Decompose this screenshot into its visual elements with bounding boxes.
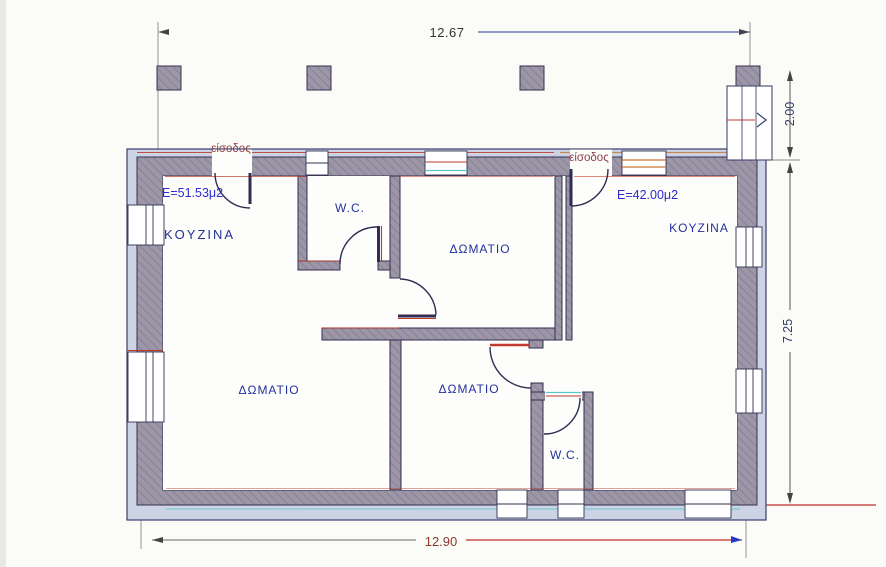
entrance-label-left: είσοδος [211,143,251,155]
arrowhead [152,537,163,543]
arrowhead [787,147,793,158]
column [307,66,331,90]
kitchen-label-right: KOYZINA [669,221,729,235]
porch-depth-dimension: 2.00 [783,102,797,126]
column [736,66,760,86]
arrowhead [739,29,750,35]
exterior-stair [727,86,772,160]
window [558,490,584,518]
column [157,66,181,90]
wc1-bottom-wall [298,261,340,270]
wc1-left-wall [298,176,307,262]
floor-plan-drawing: 12.67 12.90 2.00 7.25 είσοδος είσοδος E=… [0,0,886,567]
arrowhead [787,493,793,504]
wc1-right-wall [390,176,400,278]
kitchen-label-left: KOYZINA [164,227,235,242]
room-label-top-middle: ΔΩΜΑΤΙΟ [449,242,510,256]
room-label-bottom-middle: ΔΩΜΑΤΙΟ [438,382,499,396]
right-height-dimension: 7.25 [781,319,795,343]
window [128,351,164,423]
room-label-left: ΔΩΜΑΤΙΟ [238,383,299,397]
window [736,227,762,267]
wc2-right-wall [584,392,593,490]
porch-columns [157,66,760,90]
window [622,151,666,175]
arrowhead [787,162,793,173]
window [497,490,527,518]
wc-label-bottom: W.C. [550,448,580,462]
window [736,369,762,413]
bottom-width-dimension: 12.90 [425,534,458,549]
area-label-right: E=42.00μ2 [617,188,678,202]
arrowhead-blue [731,536,742,543]
room-divider-wall [390,340,401,490]
column [520,66,544,90]
window [685,490,731,518]
party-wall-left [555,176,562,340]
area-label-left: E=51.53μ2 [162,186,223,200]
arrowhead [787,70,793,81]
door-hinge-stub [529,340,543,348]
window [306,151,328,175]
window [128,205,164,245]
scan-edge [0,0,6,567]
wc-label-top: W.C. [335,201,365,215]
wc1-door-post [378,261,390,270]
central-horizontal-wall [322,328,556,340]
entrance-label-right: είσοδος [569,152,609,164]
top-width-dimension: 12.67 [429,25,464,40]
arrowhead [158,29,169,35]
floor-plan-scan: 12.67 12.90 2.00 7.25 είσοδος είσοδος E=… [0,0,886,567]
window [425,151,467,175]
stair-outline [727,86,772,160]
